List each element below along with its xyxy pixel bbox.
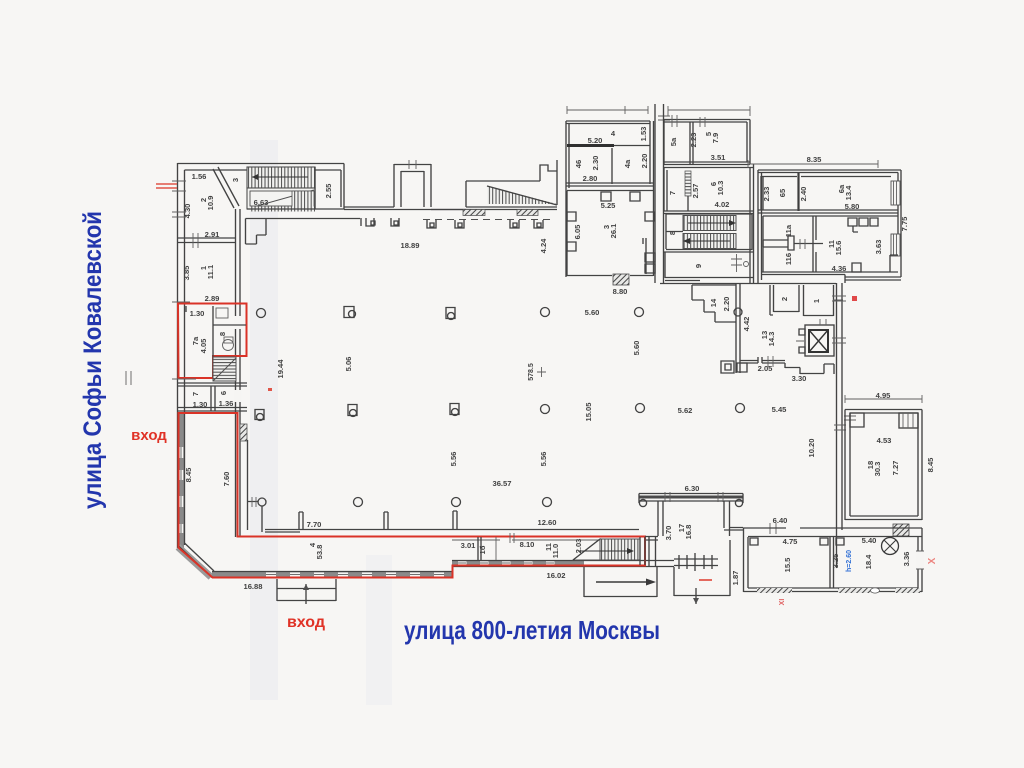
svg-text:19.44: 19.44 [276, 359, 285, 379]
svg-text:5.80: 5.80 [845, 202, 860, 211]
svg-text:3: 3 [231, 178, 240, 182]
svg-text:вход: вход [287, 614, 325, 631]
svg-text:2.55: 2.55 [324, 183, 333, 199]
svg-text:2: 2 [780, 297, 789, 301]
svg-text:11.0: 11.0 [551, 544, 560, 558]
svg-text:6: 6 [219, 391, 228, 395]
svg-text:6.63: 6.63 [254, 198, 269, 207]
svg-text:3.25: 3.25 [831, 553, 840, 569]
svg-text:4.36: 4.36 [832, 264, 847, 273]
svg-text:2.03: 2.03 [574, 539, 583, 554]
svg-text:5.56: 5.56 [449, 452, 458, 467]
svg-text:6.05: 6.05 [573, 224, 582, 240]
svg-text:116: 116 [784, 253, 793, 265]
svg-text:30.3: 30.3 [873, 462, 882, 477]
svg-text:1.56: 1.56 [192, 172, 207, 181]
svg-text:4.30: 4.30 [183, 204, 192, 219]
svg-text:18.89: 18.89 [400, 241, 419, 250]
svg-text:5.40: 5.40 [862, 536, 877, 545]
svg-text:36.57: 36.57 [492, 479, 511, 488]
svg-text:4.95: 4.95 [876, 391, 892, 400]
svg-text:8.80: 8.80 [613, 287, 628, 296]
svg-text:2.40: 2.40 [799, 187, 808, 202]
svg-text:10.20: 10.20 [807, 438, 816, 457]
svg-text:5.60: 5.60 [585, 308, 600, 317]
svg-text:5.45: 5.45 [772, 405, 788, 414]
svg-text:3.30: 3.30 [792, 374, 807, 383]
svg-text:7.70: 7.70 [307, 520, 322, 529]
svg-text:2.57: 2.57 [691, 184, 700, 199]
svg-text:5.56: 5.56 [539, 452, 548, 467]
svg-text:4.24: 4.24 [539, 238, 548, 254]
svg-text:1.87: 1.87 [731, 571, 740, 586]
svg-text:2.80: 2.80 [583, 174, 598, 183]
svg-text:4.05: 4.05 [199, 338, 208, 354]
svg-text:12.60: 12.60 [537, 518, 556, 527]
svg-text:5a: 5a [669, 137, 678, 146]
svg-text:5.06: 5.06 [344, 357, 353, 372]
svg-text:8.45: 8.45 [926, 457, 935, 473]
svg-text:16.88: 16.88 [243, 582, 262, 591]
svg-text:улица Софьи Ковалевской: улица Софьи Ковалевской [79, 211, 107, 509]
svg-text:4.02: 4.02 [715, 200, 730, 209]
svg-text:7.27: 7.27 [891, 461, 900, 476]
svg-text:8.45: 8.45 [184, 467, 193, 483]
svg-text:2.05: 2.05 [758, 364, 774, 373]
svg-text:11a: 11a [784, 224, 793, 237]
svg-text:6.30: 6.30 [685, 484, 700, 493]
svg-text:15.05: 15.05 [584, 402, 593, 422]
svg-text:15.6: 15.6 [834, 241, 843, 256]
svg-text:3.85: 3.85 [182, 265, 191, 281]
svg-text:1.36: 1.36 [219, 399, 234, 408]
svg-text:4.75: 4.75 [783, 537, 799, 546]
svg-text:13.4: 13.4 [844, 185, 853, 201]
svg-text:4.53: 4.53 [877, 436, 892, 445]
svg-text:11.1: 11.1 [206, 264, 215, 279]
svg-text:7: 7 [668, 191, 677, 195]
svg-text:3.01: 3.01 [461, 541, 477, 550]
svg-text:8.35: 8.35 [807, 155, 823, 164]
svg-text:15.5: 15.5 [783, 557, 792, 573]
svg-text:2.91: 2.91 [205, 230, 221, 239]
svg-text:2.33: 2.33 [762, 187, 771, 202]
svg-text:7.75: 7.75 [900, 216, 909, 232]
svg-text:10.3: 10.3 [716, 181, 725, 196]
svg-text:X: X [927, 557, 938, 564]
svg-text:3.70: 3.70 [664, 526, 673, 541]
svg-text:XI: XI [779, 599, 786, 606]
svg-text:2.20: 2.20 [640, 154, 649, 169]
svg-text:3.51: 3.51 [711, 153, 727, 162]
svg-text:7: 7 [191, 392, 200, 396]
svg-text:5.20: 5.20 [588, 136, 603, 145]
svg-text:26.1: 26.1 [609, 223, 618, 239]
svg-text:8: 8 [668, 231, 677, 235]
svg-text:вход: вход [131, 427, 167, 444]
svg-text:4.42: 4.42 [742, 317, 751, 332]
svg-text:1.30: 1.30 [193, 400, 208, 409]
svg-text:4a: 4a [623, 159, 632, 168]
svg-text:8.10: 8.10 [520, 540, 535, 549]
svg-text:10.9: 10.9 [206, 196, 215, 211]
svg-text:3.63: 3.63 [874, 240, 883, 255]
svg-text:2.23: 2.23 [689, 133, 698, 148]
svg-text:2.20: 2.20 [722, 297, 731, 312]
svg-text:1.53: 1.53 [639, 127, 648, 142]
svg-text:2.89: 2.89 [205, 294, 220, 303]
svg-text:14: 14 [709, 298, 718, 307]
svg-text:9: 9 [694, 264, 703, 268]
svg-text:16.02: 16.02 [546, 571, 565, 580]
svg-text:5.60: 5.60 [632, 341, 641, 356]
svg-text:578.5: 578.5 [528, 363, 535, 381]
svg-text:7.9: 7.9 [711, 133, 720, 144]
svg-text:h=2.60: h=2.60 [846, 550, 853, 572]
svg-text:65: 65 [778, 188, 787, 197]
svg-text:1б: 1б [478, 545, 487, 554]
svg-text:46: 46 [574, 160, 583, 168]
svg-text:16.8: 16.8 [684, 525, 693, 540]
svg-text:3.36: 3.36 [902, 552, 911, 567]
svg-text:5.62: 5.62 [678, 406, 693, 415]
svg-text:14.3: 14.3 [767, 332, 776, 347]
svg-text:18.4: 18.4 [864, 554, 873, 570]
svg-text:7.60: 7.60 [222, 472, 231, 487]
svg-text:улица 800-летия Москвы: улица 800-летия Москвы [404, 615, 660, 645]
svg-text:5.25: 5.25 [601, 201, 617, 210]
svg-text:6.40: 6.40 [773, 516, 788, 525]
svg-text:53.8: 53.8 [315, 545, 324, 560]
svg-text:8: 8 [218, 332, 227, 336]
svg-text:2.30: 2.30 [591, 156, 600, 171]
svg-text:1.30: 1.30 [190, 309, 205, 318]
